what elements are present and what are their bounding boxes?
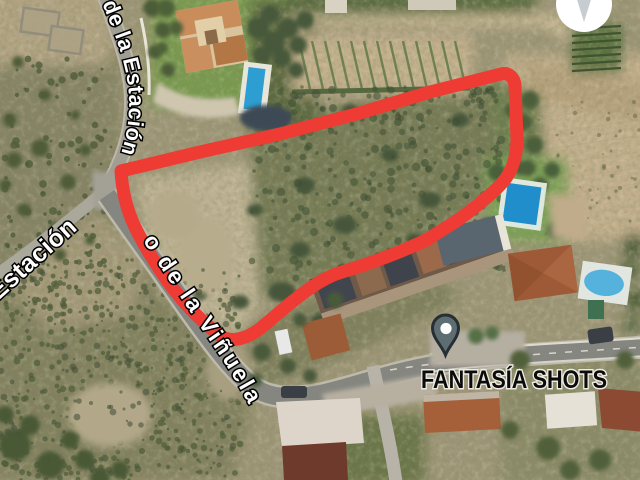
svg-text:FANTASÍA SHOTS: FANTASÍA SHOTS [421, 365, 607, 394]
